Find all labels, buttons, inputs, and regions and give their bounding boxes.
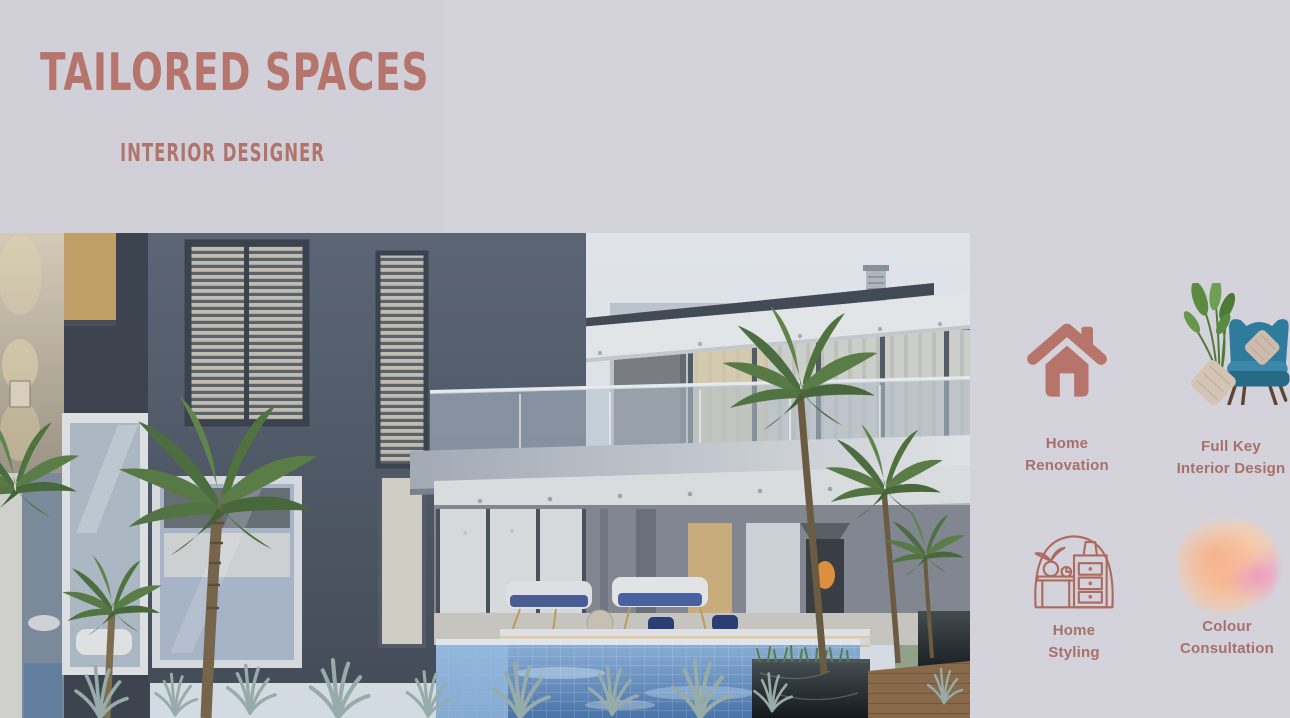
service-colour-consultation: ColourConsultation — [1152, 518, 1290, 660]
service-label: ColourConsultation — [1180, 616, 1274, 660]
armchair-plant-image — [1172, 283, 1290, 405]
brand-subtitle: INTERIOR DESIGNER — [120, 138, 325, 167]
brand-title: TAILORED SPACES — [40, 46, 429, 101]
service-home-styling: HomeStyling — [1014, 522, 1134, 664]
service-full-key-interior-design: Full KeyInterior Design — [1156, 283, 1290, 480]
page: TAILORED SPACES INTERIOR DESIGNER — [0, 0, 1290, 718]
villa-photo-image — [0, 233, 970, 718]
service-label: Full KeyInterior Design — [1177, 436, 1286, 480]
service-label: HomeStyling — [1048, 620, 1099, 664]
watercolor-blob-icon — [1176, 518, 1278, 612]
service-home-renovation: HomeRenovation — [1012, 315, 1122, 477]
furniture-line-icon — [1026, 522, 1122, 612]
home-icon — [1024, 315, 1110, 403]
brand-header: TAILORED SPACES INTERIOR DESIGNER — [40, 46, 581, 101]
service-label: HomeRenovation — [1025, 433, 1109, 477]
